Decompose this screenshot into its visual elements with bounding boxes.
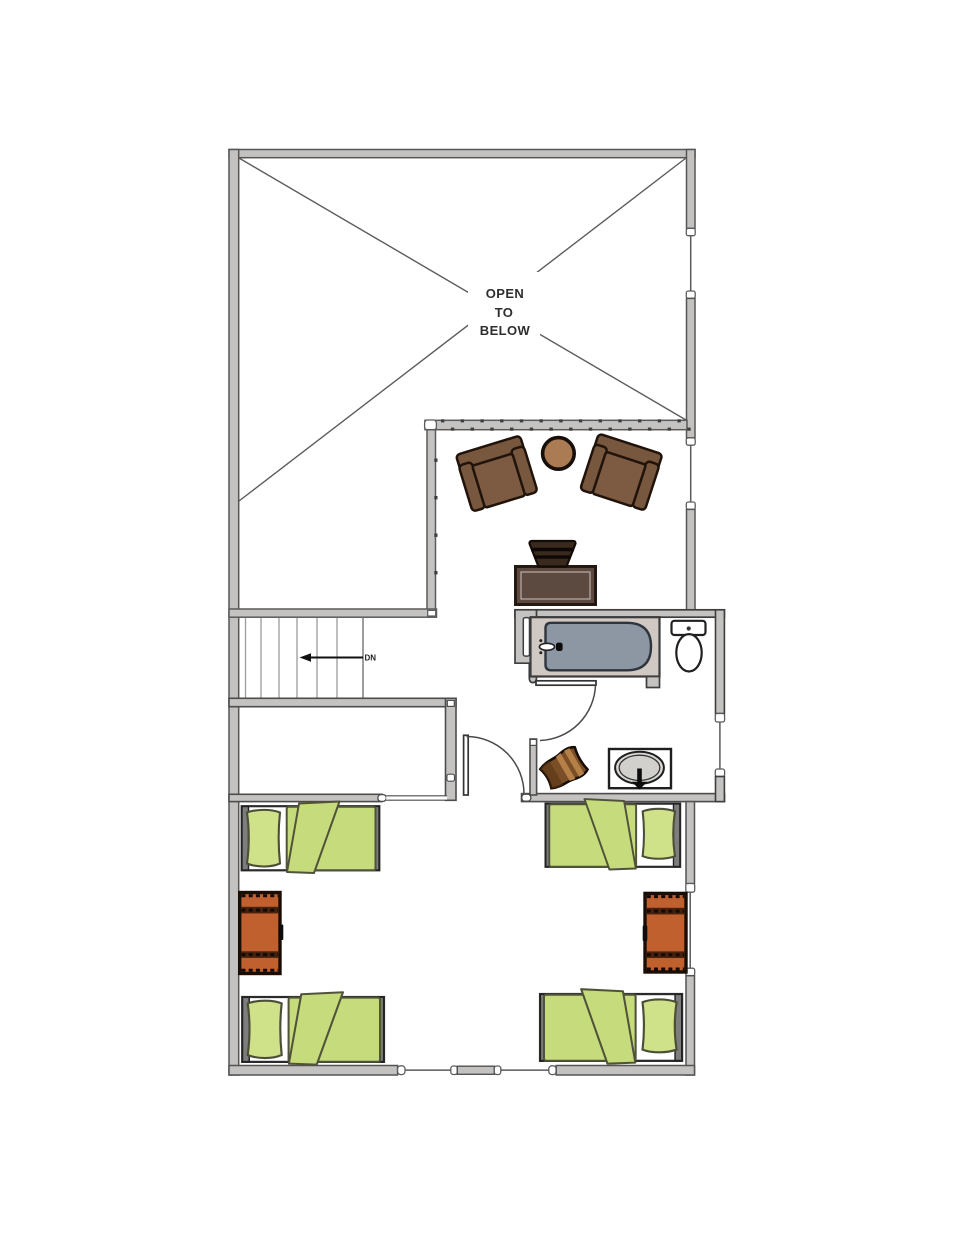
- svg-text:OPEN: OPEN: [486, 286, 524, 301]
- svg-text:TO: TO: [495, 305, 514, 320]
- svg-text:DN: DN: [365, 654, 377, 663]
- svg-text:BELOW: BELOW: [480, 323, 531, 338]
